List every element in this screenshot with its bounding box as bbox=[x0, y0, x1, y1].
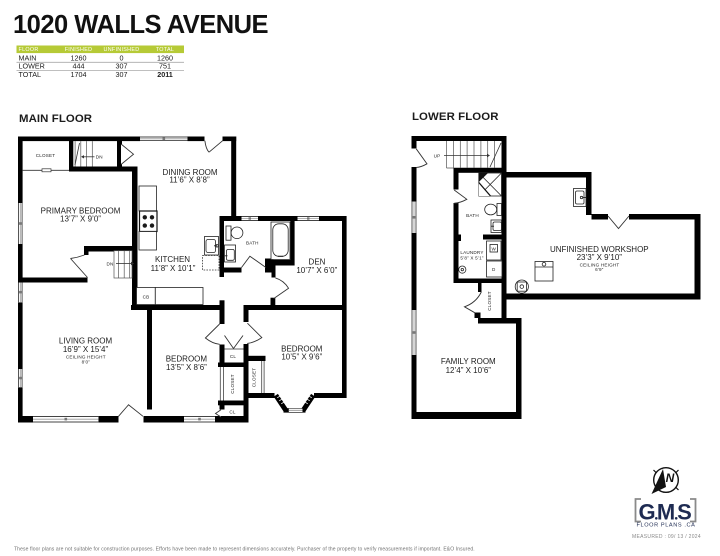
svg-text:2011: 2011 bbox=[157, 70, 173, 79]
svg-text:TOTAL: TOTAL bbox=[19, 70, 42, 79]
svg-text:TOTAL: TOTAL bbox=[156, 47, 174, 53]
svg-text:FLOOR: FLOOR bbox=[19, 47, 39, 53]
svg-text:LOWER FLOOR: LOWER FLOOR bbox=[412, 111, 499, 123]
svg-text:11’6” X 8’8”: 11’6” X 8’8” bbox=[169, 175, 210, 184]
svg-text:CB: CB bbox=[143, 294, 150, 299]
svg-text:CLOSET: CLOSET bbox=[487, 291, 492, 311]
svg-text:10’7” X 6’0”: 10’7” X 6’0” bbox=[296, 266, 337, 275]
svg-text:FINISHED: FINISHED bbox=[65, 47, 93, 53]
svg-text:CEILING HEIGHT: CEILING HEIGHT bbox=[66, 354, 106, 359]
svg-text:G: G bbox=[638, 500, 655, 525]
svg-text:UNFINISHED: UNFINISHED bbox=[104, 47, 140, 53]
svg-text:13’7” X 9’0”: 13’7” X 9’0” bbox=[60, 215, 101, 224]
svg-text:FAMILY ROOM: FAMILY ROOM bbox=[441, 357, 496, 366]
svg-text:CLOSET: CLOSET bbox=[230, 374, 235, 394]
svg-text:6’9”: 6’9” bbox=[595, 267, 604, 272]
svg-text:BATH: BATH bbox=[466, 213, 479, 218]
svg-text:M: M bbox=[657, 500, 675, 525]
svg-text:CLOSET: CLOSET bbox=[252, 368, 257, 388]
svg-text:23’3” X 9’10”: 23’3” X 9’10” bbox=[577, 253, 623, 262]
svg-text:DN: DN bbox=[106, 261, 113, 266]
svg-text:D: D bbox=[492, 267, 496, 272]
svg-text:DN: DN bbox=[96, 155, 103, 160]
svg-text:5’8” X 5’1”: 5’8” X 5’1” bbox=[460, 255, 483, 260]
svg-text:12’4” X 10’6”: 12’4” X 10’6” bbox=[446, 366, 492, 375]
svg-text:16’9” X 15’4”: 16’9” X 15’4” bbox=[63, 345, 109, 354]
svg-text:11’8” X 10’1”: 11’8” X 10’1” bbox=[151, 264, 196, 273]
svg-text:MEASURED : 09/ 13 / 2024: MEASURED : 09/ 13 / 2024 bbox=[632, 534, 701, 540]
svg-text:W: W bbox=[492, 247, 497, 252]
svg-text:CLOSET: CLOSET bbox=[36, 153, 56, 158]
svg-text:1020 WALLS AVENUE: 1020 WALLS AVENUE bbox=[13, 11, 269, 39]
svg-text:10’5” X 9’6”: 10’5” X 9’6” bbox=[281, 353, 322, 362]
svg-text:CL: CL bbox=[230, 354, 237, 359]
svg-text:UP: UP bbox=[434, 153, 441, 158]
svg-text:BATH: BATH bbox=[246, 241, 259, 246]
svg-text:These floor plans are not suit: These floor plans are not suitable for c… bbox=[14, 546, 475, 552]
svg-text:S: S bbox=[677, 500, 692, 525]
svg-text:CL: CL bbox=[229, 410, 236, 415]
svg-text:FLOOR PLANS .CA: FLOOR PLANS .CA bbox=[636, 523, 695, 529]
svg-text:1704: 1704 bbox=[71, 70, 87, 79]
svg-text:MAIN FLOOR: MAIN FLOOR bbox=[19, 113, 92, 125]
svg-text:N: N bbox=[666, 471, 675, 485]
svg-text:8’0”: 8’0” bbox=[82, 360, 91, 365]
svg-text:13’5” X 8’6”: 13’5” X 8’6” bbox=[166, 363, 207, 372]
svg-text:307: 307 bbox=[116, 70, 128, 79]
